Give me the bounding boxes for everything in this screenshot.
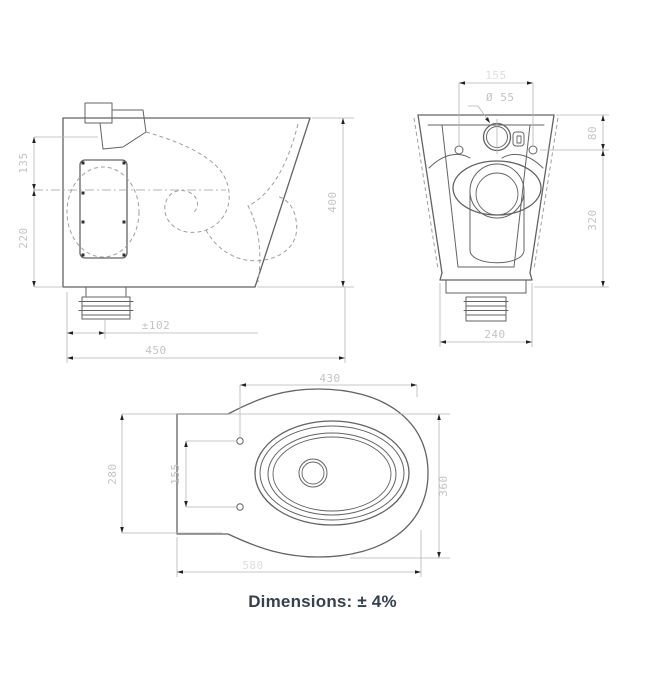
front-elevation-view: 155 Ø 55 80 320 240 [398,55,643,355]
plan-dim-holes-to-front: 430 [319,372,340,385]
fixing-plate [80,160,127,258]
front-flush-hole [484,119,511,154]
toilet-technical-drawing: 135 220 400 ±102 450 [0,0,645,700]
plan-dim-hole-spacing: 155 [169,463,182,484]
plan-outlet-hole [299,459,327,487]
front-body-outline [414,115,558,293]
plan-dim-back-depth: 280 [106,463,119,484]
plan-dim-overall-length: 580 [242,559,263,572]
front-dim-base-width: 240 [484,328,505,341]
side-dim-plate-height: 220 [17,227,30,248]
plan-view: 430 280 155 360 580 [110,375,455,585]
plan-dimensions: 430 280 155 360 580 [106,372,450,577]
side-elevation-view: 135 220 400 ±102 450 [8,92,360,384]
side-dim-outlet-setout: ±102 [142,319,171,332]
plan-seat-rings [255,421,409,525]
fixing-plate-dots [82,162,126,257]
front-outlet-pipe [464,297,508,321]
side-outlet-pipe [79,287,133,339]
front-dim-hole-spacing: 155 [485,69,506,82]
front-cistern-slot [513,132,524,146]
side-body-outline [63,103,310,287]
plan-dim-bowl-width: 360 [437,475,450,496]
side-dim-overall-depth: 450 [145,344,166,357]
side-dimensions: 135 220 400 ±102 450 [17,118,354,363]
plan-fixing-holes [237,438,243,510]
tolerance-note: Dimensions: ± 4% [0,592,645,612]
side-dim-overall-height: 400 [326,191,339,212]
front-dim-holes-to-base: 320 [586,209,599,230]
flush-inlet-spigot [85,103,112,123]
front-dim-flush-hole-diameter: Ø 55 [486,91,515,104]
side-dim-inlet-height: 135 [17,152,30,173]
front-dim-top-to-holes: 80 [586,126,599,140]
flush-inlet-flange [100,110,146,149]
front-bowl [429,154,543,262]
